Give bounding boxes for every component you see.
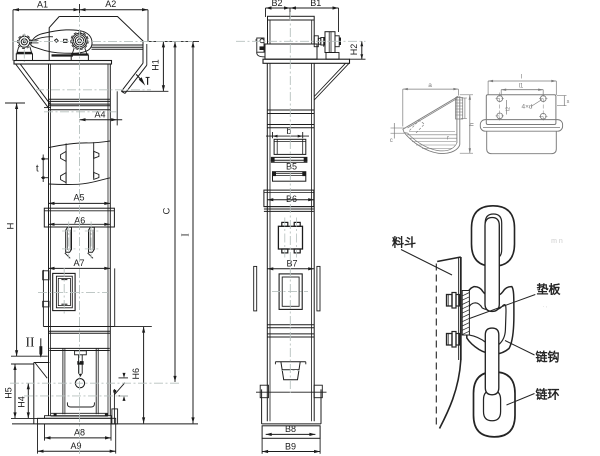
svg-text:H1: H1 <box>151 59 161 71</box>
svg-text:H6: H6 <box>131 368 141 380</box>
svg-text:H2: H2 <box>349 44 359 56</box>
svg-text:H4: H4 <box>17 396 27 408</box>
svg-text:B7: B7 <box>286 258 297 268</box>
svg-text:4×d: 4×d <box>521 103 532 110</box>
svg-text:C: C <box>161 207 172 214</box>
svg-text:A7: A7 <box>73 258 84 268</box>
svg-text:链环: 链环 <box>535 387 559 402</box>
svg-text:s: s <box>567 99 570 105</box>
svg-text:B6: B6 <box>286 194 297 204</box>
svg-text:H: H <box>5 222 16 229</box>
svg-text:t: t <box>36 164 39 175</box>
svg-text:链钩: 链钩 <box>535 349 559 364</box>
svg-text:l2: l2 <box>506 107 512 111</box>
svg-text:II: II <box>26 335 35 350</box>
svg-text:B9: B9 <box>285 441 296 451</box>
svg-text:I: I <box>180 233 191 236</box>
svg-text:B2: B2 <box>271 0 282 8</box>
svg-text:H5: H5 <box>3 387 13 399</box>
svg-text:A5: A5 <box>73 192 84 202</box>
svg-text:l1: l1 <box>519 84 524 90</box>
svg-text:A1: A1 <box>37 0 48 10</box>
svg-text:B5: B5 <box>286 161 297 171</box>
svg-text:垫板: 垫板 <box>536 282 561 297</box>
svg-text:A2: A2 <box>105 0 116 9</box>
svg-text:A4: A4 <box>94 109 105 119</box>
svg-text:m n: m n <box>551 238 563 245</box>
svg-text:a: a <box>428 82 432 89</box>
svg-text:. ,: . , <box>542 303 547 309</box>
svg-text:h: h <box>469 123 475 126</box>
svg-text:B8: B8 <box>285 424 296 434</box>
svg-text:c: c <box>390 138 393 144</box>
svg-text:r: r <box>447 136 449 142</box>
svg-text:B1: B1 <box>310 0 321 8</box>
svg-text:料斗: 料斗 <box>392 235 416 250</box>
